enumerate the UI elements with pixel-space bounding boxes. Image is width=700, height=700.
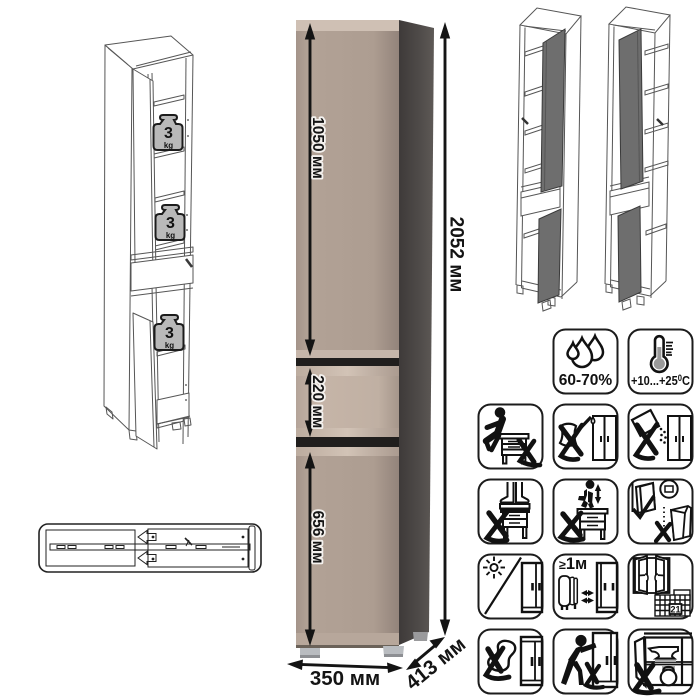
svg-text:3: 3 bbox=[165, 325, 174, 342]
svg-text:3: 3 bbox=[164, 125, 173, 142]
svg-text:220 мм: 220 мм bbox=[309, 375, 326, 428]
svg-text:1050 мм: 1050 мм bbox=[309, 117, 326, 179]
svg-text:kg: kg bbox=[166, 231, 175, 240]
svg-text:kg: kg bbox=[165, 341, 174, 350]
svg-text:kg: kg bbox=[164, 141, 173, 150]
svg-text:+10...+250C: +10...+250C bbox=[631, 373, 691, 388]
svg-text:60-70%: 60-70% bbox=[559, 372, 613, 389]
svg-text:21: 21 bbox=[670, 605, 680, 615]
svg-text:656 мм: 656 мм bbox=[309, 510, 326, 563]
svg-text:350 мм: 350 мм bbox=[310, 667, 380, 690]
svg-text:≥1м: ≥1м bbox=[559, 555, 587, 573]
svg-text:2052 мм: 2052 мм bbox=[446, 217, 467, 293]
svg-text:3: 3 bbox=[166, 215, 175, 232]
